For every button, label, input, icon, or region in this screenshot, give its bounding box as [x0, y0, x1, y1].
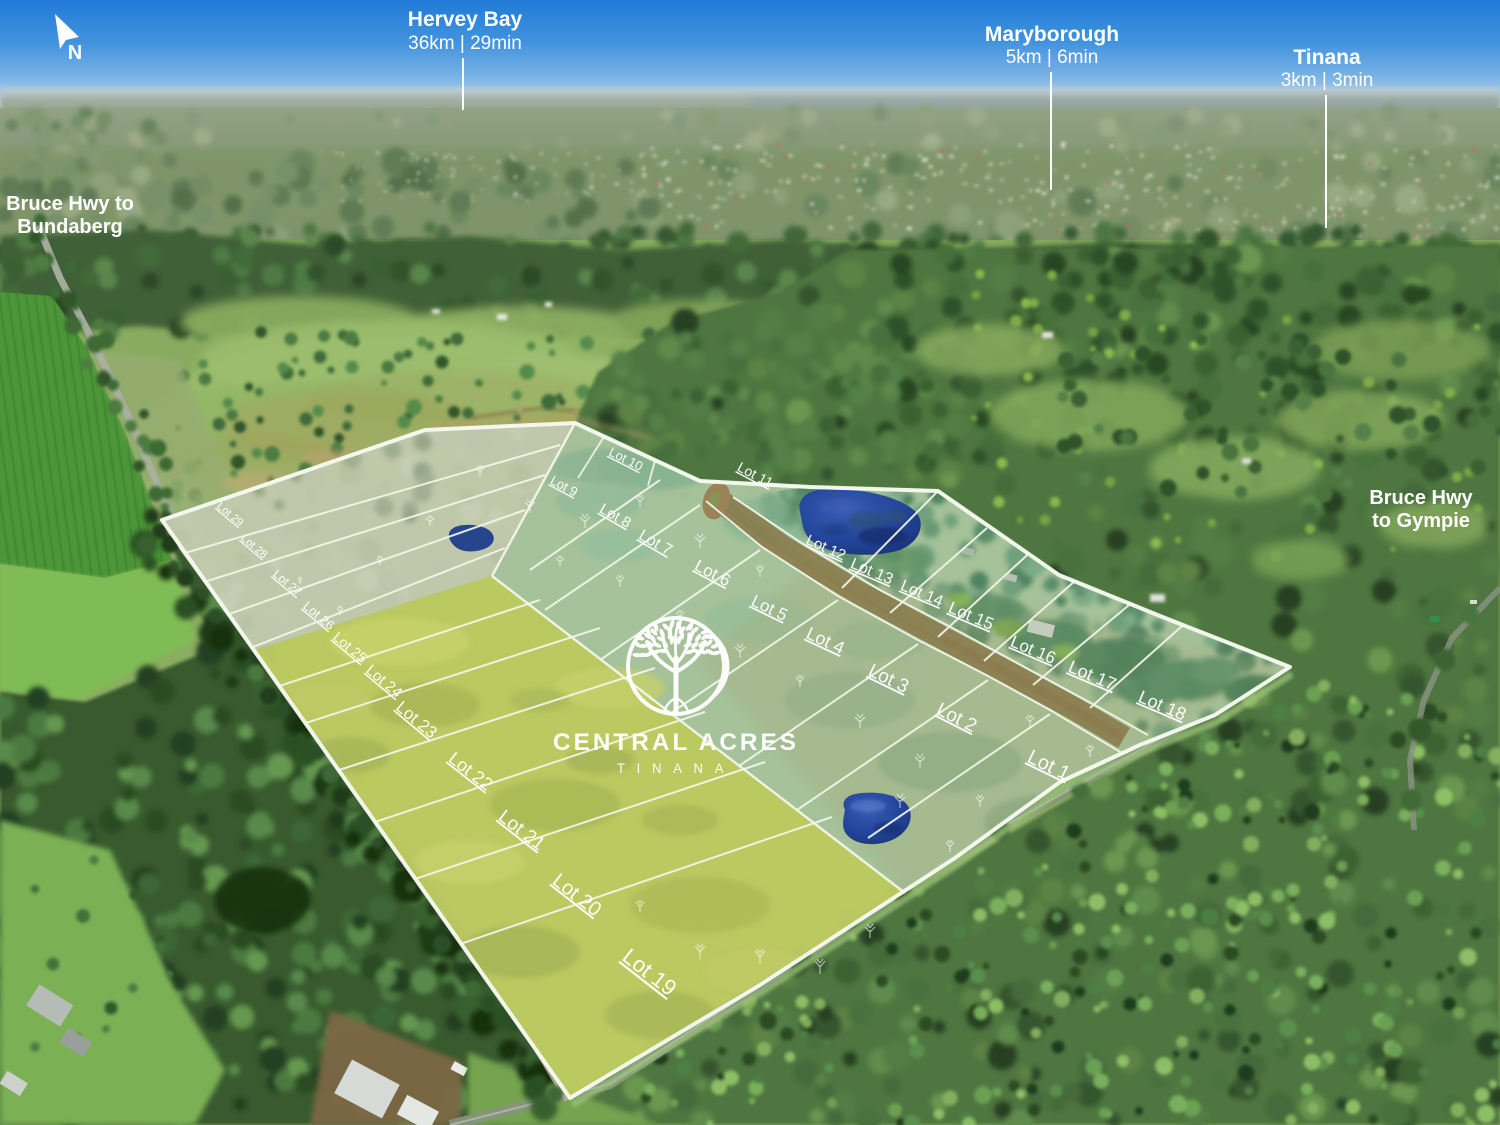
svg-text:Bundaberg: Bundaberg	[17, 216, 123, 238]
svg-text:Bruce Hwy: Bruce Hwy	[1369, 487, 1473, 509]
svg-text:CENTRAL ACRES: CENTRAL ACRES	[553, 729, 799, 756]
svg-text:Tinana: Tinana	[1293, 46, 1361, 69]
svg-text:N: N	[68, 42, 82, 64]
svg-text:Bruce Hwy to: Bruce Hwy to	[6, 193, 134, 215]
svg-text:36km | 29min: 36km | 29min	[408, 33, 522, 54]
svg-text:to Gympie: to Gympie	[1372, 510, 1470, 532]
svg-text:5km | 6min: 5km | 6min	[1006, 47, 1099, 68]
svg-text:Hervey Bay: Hervey Bay	[408, 8, 523, 31]
svg-text:3km | 3min: 3km | 3min	[1281, 70, 1374, 91]
svg-text:TINANA: TINANA	[617, 761, 735, 776]
svg-text:Maryborough: Maryborough	[985, 23, 1119, 46]
